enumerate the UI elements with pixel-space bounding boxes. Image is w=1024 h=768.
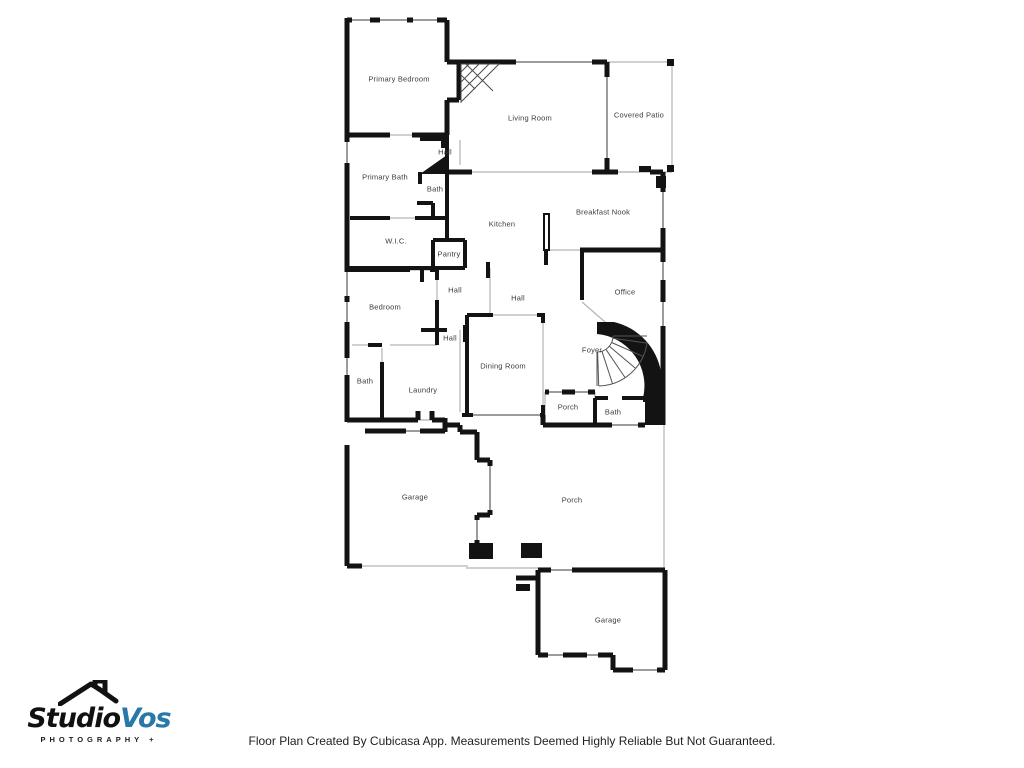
- room-label-wic: W.I.C.: [385, 237, 407, 246]
- room-label-hall-lower: Hall: [443, 334, 457, 343]
- room-label-primary-bedroom: Primary Bedroom: [368, 75, 429, 84]
- room-label-hall-center: Hall: [511, 294, 525, 303]
- room-label-office: Office: [615, 288, 636, 297]
- room-label-garage-bottom: Garage: [595, 616, 621, 625]
- kitchen-island: [544, 214, 549, 250]
- room-label-living-room: Living Room: [508, 114, 552, 123]
- room-label-hall-upper: Hall: [438, 148, 452, 157]
- logo-studio-text: Studio: [27, 703, 120, 734]
- room-label-laundry: Laundry: [409, 386, 438, 395]
- room-label-covered-patio: Covered Patio: [614, 111, 664, 120]
- room-label-hall-west: Hall: [448, 286, 462, 295]
- room-label-garage-main: Garage: [402, 493, 428, 502]
- solid-wall-fills: [420, 59, 674, 591]
- logo-vos-text: Vos: [120, 703, 171, 734]
- logo-wordmark: StudioVos: [24, 706, 174, 732]
- porch-pillar: [469, 543, 493, 559]
- room-label-bedroom: Bedroom: [369, 303, 401, 312]
- room-label-bath-upper: Bath: [427, 185, 443, 194]
- room-label-foyer: Foyer: [582, 346, 602, 355]
- floor-plan-page: Primary Bedroom Living Room Covered Pati…: [0, 0, 1024, 768]
- room-label-breakfast-nook: Breakfast Nook: [576, 208, 630, 217]
- room-label-bath-west: Bath: [357, 377, 373, 386]
- room-label-pantry: Pantry: [438, 250, 461, 259]
- thin-boundary-lines: [352, 62, 672, 570]
- room-label-primary-bath: Primary Bath: [362, 173, 408, 182]
- room-label-dining-room: Dining Room: [480, 362, 526, 371]
- room-label-bath-foyer: Bath: [605, 408, 621, 417]
- room-label-kitchen: Kitchen: [489, 220, 515, 229]
- curved-stair-wall: [597, 322, 661, 402]
- porch-pillar: [521, 543, 542, 558]
- fireplace-hatch: [461, 64, 499, 102]
- angled-wall: [420, 155, 447, 174]
- footer-disclaimer: Floor Plan Created By Cubicasa App. Meas…: [0, 734, 1024, 748]
- room-label-porch-small: Porch: [558, 403, 579, 412]
- room-label-porch-large: Porch: [562, 496, 583, 505]
